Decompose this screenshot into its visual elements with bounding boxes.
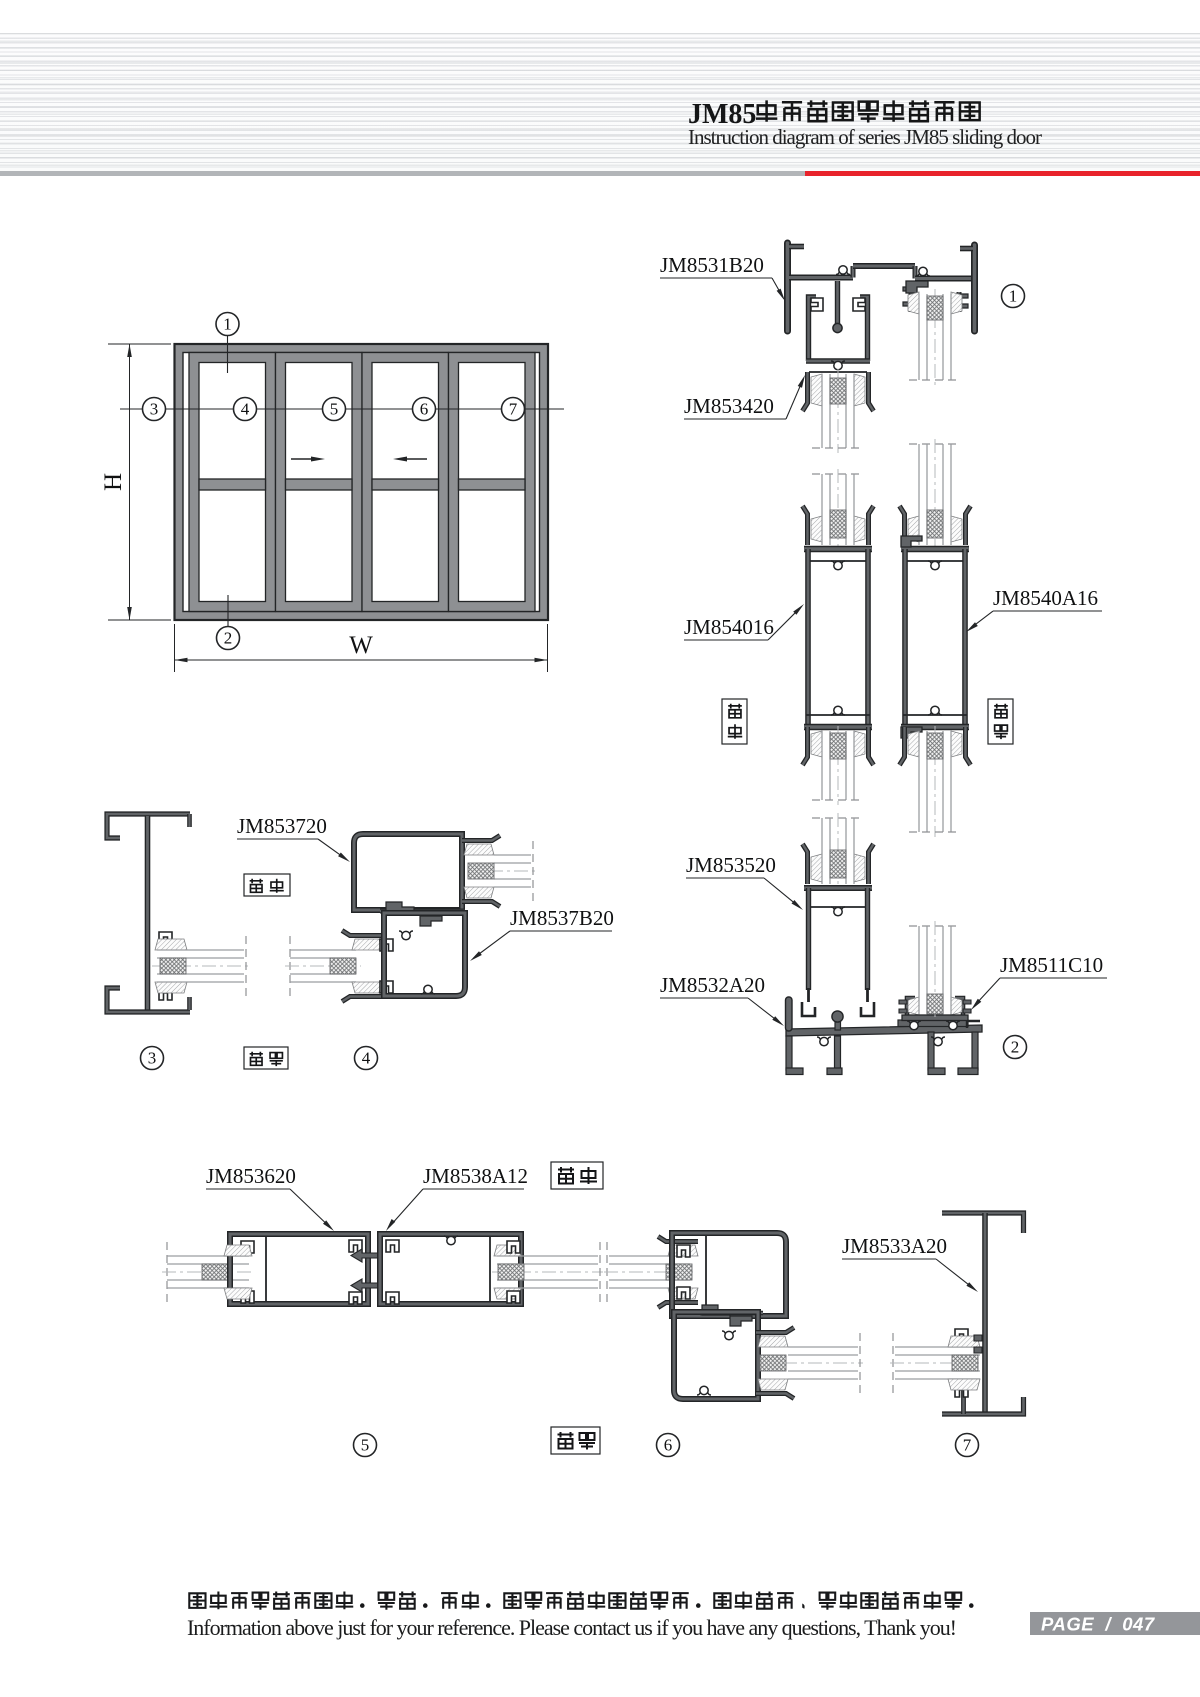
- svg-text:3: 3: [150, 400, 159, 419]
- svg-text:4: 4: [362, 1049, 371, 1068]
- svg-text:JM853720: JM853720: [237, 814, 327, 838]
- svg-text:JM8532A20: JM8532A20: [660, 973, 765, 997]
- svg-text:H: H: [100, 473, 127, 491]
- svg-text:2: 2: [224, 629, 233, 648]
- svg-text:Instruction diagram of series: Instruction diagram of series JM85 slidi…: [688, 125, 1042, 149]
- svg-text:1: 1: [1009, 287, 1018, 306]
- svg-text:1: 1: [223, 315, 232, 334]
- svg-text:JM8537B20: JM8537B20: [510, 906, 614, 930]
- svg-text:7: 7: [509, 400, 518, 419]
- svg-text:2: 2: [1011, 1038, 1020, 1057]
- svg-text:6: 6: [420, 400, 429, 419]
- svg-text:JM854016: JM854016: [684, 615, 774, 639]
- svg-text:3: 3: [148, 1049, 157, 1068]
- svg-text:JM8533A20: JM8533A20: [842, 1234, 947, 1258]
- svg-text:JM8540A16: JM8540A16: [993, 586, 1098, 610]
- svg-text:JM853420: JM853420: [684, 394, 774, 418]
- svg-text:JM8511C10: JM8511C10: [1000, 953, 1103, 977]
- svg-text:Information above just for you: Information above just for your referenc…: [187, 1615, 957, 1640]
- svg-text:5: 5: [330, 400, 339, 419]
- svg-text:5: 5: [361, 1436, 370, 1455]
- svg-text:PAGE / 047: PAGE / 047: [1041, 1614, 1156, 1635]
- svg-text:W: W: [349, 632, 373, 659]
- svg-text:JM853620: JM853620: [206, 1164, 296, 1188]
- svg-text:7: 7: [963, 1436, 972, 1455]
- svg-text:6: 6: [664, 1436, 673, 1455]
- svg-text:JM8531B20: JM8531B20: [660, 253, 764, 277]
- svg-text:JM8538A12: JM8538A12: [423, 1164, 528, 1188]
- svg-text:JM853520: JM853520: [686, 853, 776, 877]
- svg-text:4: 4: [241, 400, 250, 419]
